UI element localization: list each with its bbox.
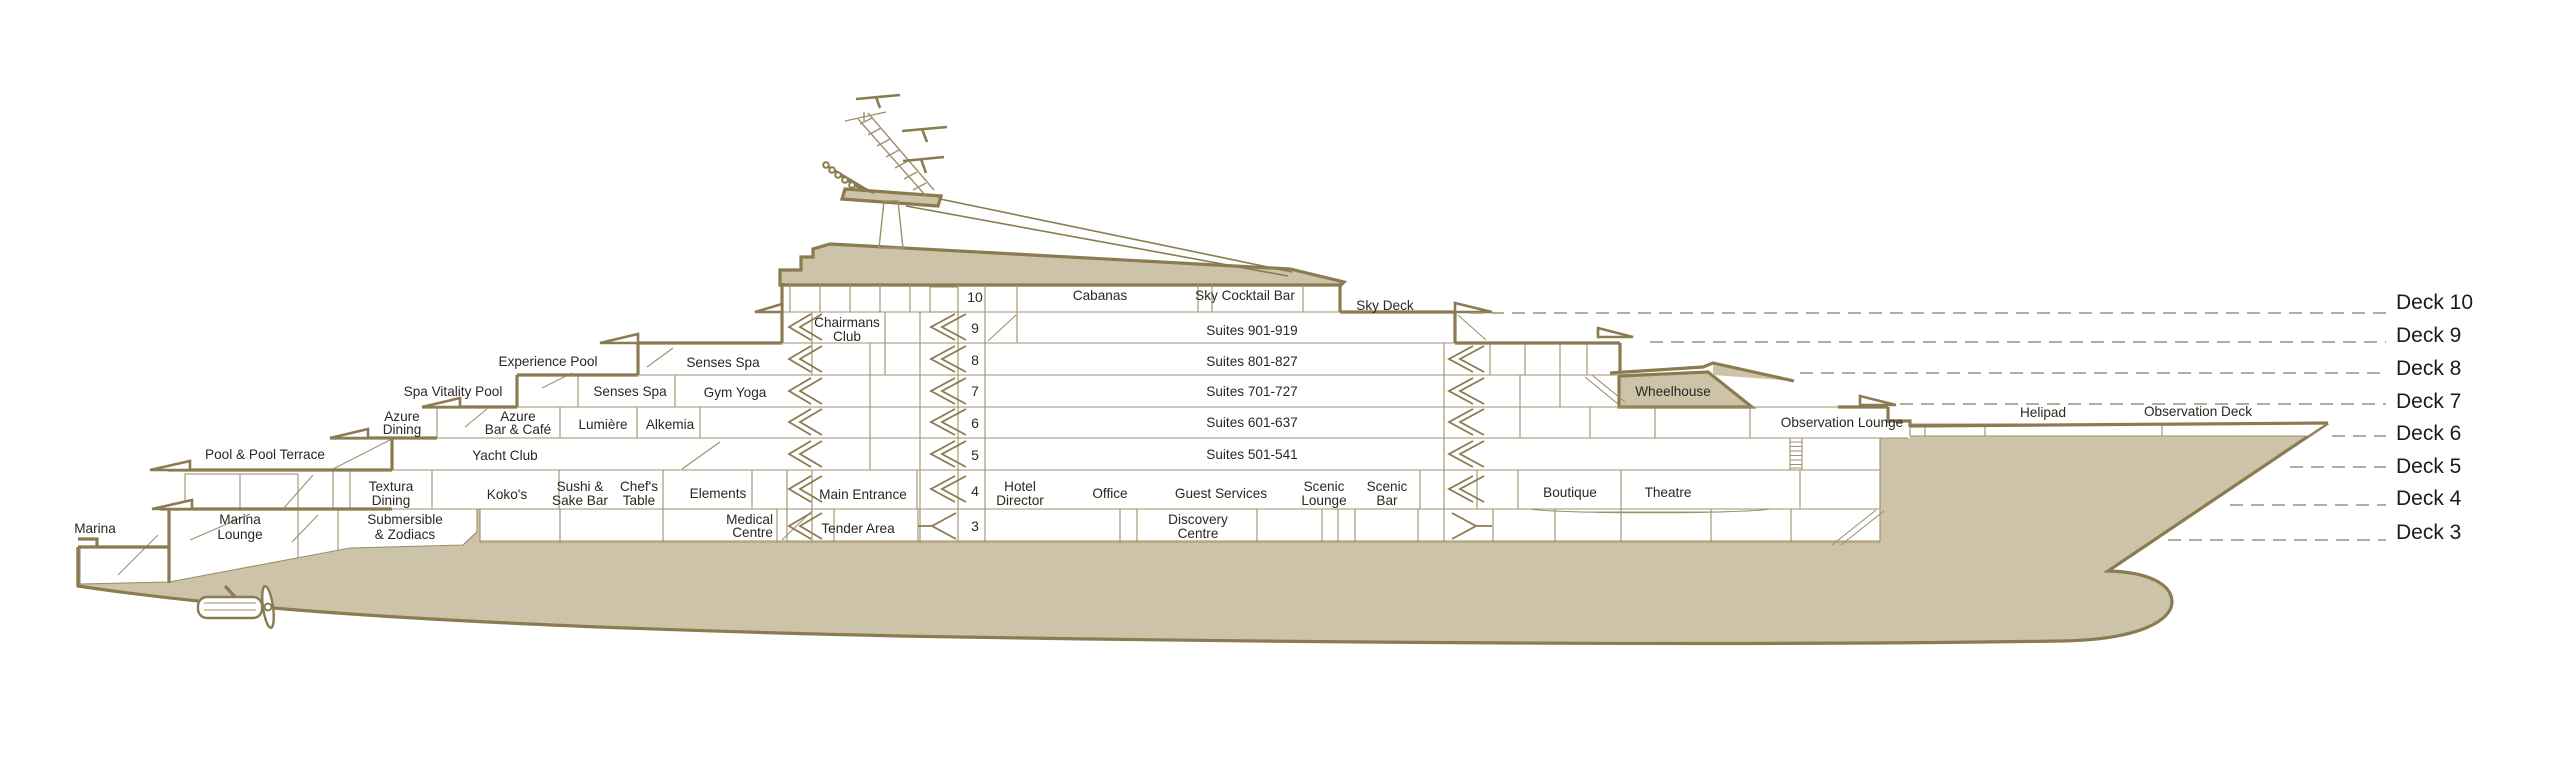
aft-deck4-boxes	[185, 474, 298, 509]
label-suites-600: Suites 601-637	[1206, 415, 1297, 430]
label-observation-deck: Observation Deck	[2144, 404, 2252, 419]
label-observation-lounge: Observation Lounge	[1781, 415, 1903, 430]
deck-scale-8: Deck 8	[2396, 357, 2461, 380]
deck-number-column: 10 9 8 7 6 5 4 3	[967, 289, 983, 534]
label-suites-500: Suites 501-541	[1206, 447, 1297, 462]
ship-cross-section-diagram: 10 9 8 7 6 5 4 3 Cabanas Sky Cocktail Ba…	[0, 0, 2560, 759]
label-azure-dining: AzureDining	[383, 409, 422, 437]
stair-chevrons-centre-shaft	[918, 314, 966, 539]
deck-number-7: 7	[971, 383, 979, 399]
ladder-rungs	[1790, 442, 1802, 468]
label-senses-spa-deck7: Senses Spa	[593, 384, 667, 399]
label-suites-800: Suites 801-827	[1206, 354, 1297, 369]
radar-antenna-1	[856, 95, 900, 108]
deck-scale: Deck 10 Deck 9 Deck 8 Deck 7 Deck 6 Deck…	[2396, 291, 2473, 544]
label-guest-services: Guest Services	[1175, 486, 1267, 501]
ship-deck-diagram-page: 10 9 8 7 6 5 4 3 Cabanas Sky Cocktail Ba…	[0, 0, 2560, 759]
label-helipad: Helipad	[2020, 405, 2066, 420]
label-theatre: Theatre	[1645, 485, 1692, 500]
label-senses-spa-deck8: Senses Spa	[686, 355, 760, 370]
label-experience-pool: Experience Pool	[499, 354, 598, 369]
label-kokos: Koko's	[487, 487, 528, 502]
mast-top-yard	[845, 112, 886, 121]
label-azure-bar-cafe: AzureBar & Café	[485, 409, 552, 437]
label-cabanas: Cabanas	[1073, 288, 1128, 303]
theatre-raked-floor	[1530, 509, 1770, 513]
label-discovery-centre: DiscoveryCentre	[1168, 512, 1228, 541]
label-spa-vitality-pool: Spa Vitality Pool	[404, 384, 503, 399]
deck-number-6: 6	[971, 415, 979, 431]
label-scenic-bar: ScenicBar	[1367, 479, 1408, 508]
propeller-hub	[265, 604, 272, 611]
deck-number-3: 3	[971, 518, 979, 534]
label-suites-900: Suites 901-919	[1206, 323, 1297, 338]
deck-scale-3: Deck 3	[2396, 521, 2461, 544]
label-pool-pool-terrace: Pool & Pool Terrace	[205, 447, 325, 462]
label-main-entrance: Main Entrance	[819, 487, 907, 502]
deck-scale-4: Deck 4	[2396, 487, 2462, 510]
label-sky-deck: Sky Deck	[1356, 298, 1414, 313]
label-chairmans-club: ChairmansClub	[814, 315, 880, 344]
label-elements: Elements	[690, 486, 747, 501]
label-scenic-lounge: ScenicLounge	[1301, 479, 1346, 508]
deck-number-8: 8	[971, 352, 979, 368]
pod-body	[198, 597, 262, 618]
label-lumiere: Lumière	[578, 417, 627, 432]
label-gym-yoga: Gym Yoga	[704, 385, 767, 400]
label-hotel-director: HotelDirector	[996, 479, 1044, 508]
deck-number-9: 9	[971, 320, 979, 336]
stair-chevrons-left-shaft	[789, 314, 822, 539]
deck-scale-5: Deck 5	[2396, 455, 2461, 478]
mast-leg	[879, 201, 903, 248]
label-office: Office	[1092, 486, 1127, 501]
deck-number-10: 10	[967, 289, 983, 305]
deck-number-4: 4	[971, 483, 979, 499]
deck-scale-9: Deck 9	[2396, 324, 2461, 347]
deck-scale-7: Deck 7	[2396, 390, 2461, 413]
label-wheelhouse: Wheelhouse	[1635, 384, 1711, 399]
label-submersible-zodiacs: Submersible& Zodiacs	[367, 512, 443, 542]
radar-antenna-2	[902, 127, 947, 142]
deck-scale-10: Deck 10	[2396, 291, 2473, 314]
label-sushi-sake-bar: Sushi &Sake Bar	[552, 479, 608, 508]
mast-platform	[842, 189, 941, 206]
marina-bay	[80, 548, 168, 584]
label-marina: Marina	[74, 521, 116, 536]
mast-lattice	[858, 113, 934, 196]
deck-scale-6: Deck 6	[2396, 422, 2461, 445]
label-sky-cocktail-bar: Sky Cocktail Bar	[1195, 288, 1295, 303]
deck-number-5: 5	[971, 447, 979, 463]
superstructure-roof	[780, 95, 1344, 285]
label-chefs-table: Chef'sTable	[620, 479, 658, 508]
label-textura-dining: TexturaDining	[369, 479, 414, 508]
label-suites-700: Suites 701-727	[1206, 384, 1297, 399]
lift-shaft	[930, 287, 958, 312]
label-tender-area: Tender Area	[821, 521, 895, 536]
radar-antenna-3	[903, 157, 944, 173]
label-yacht-club: Yacht Club	[472, 448, 538, 463]
label-marina-lounge: MarinaLounge	[217, 512, 262, 542]
label-medical-centre: MedicalCentre	[726, 512, 773, 540]
label-alkemia: Alkemia	[646, 417, 695, 432]
label-boutique: Boutique	[1543, 485, 1597, 500]
